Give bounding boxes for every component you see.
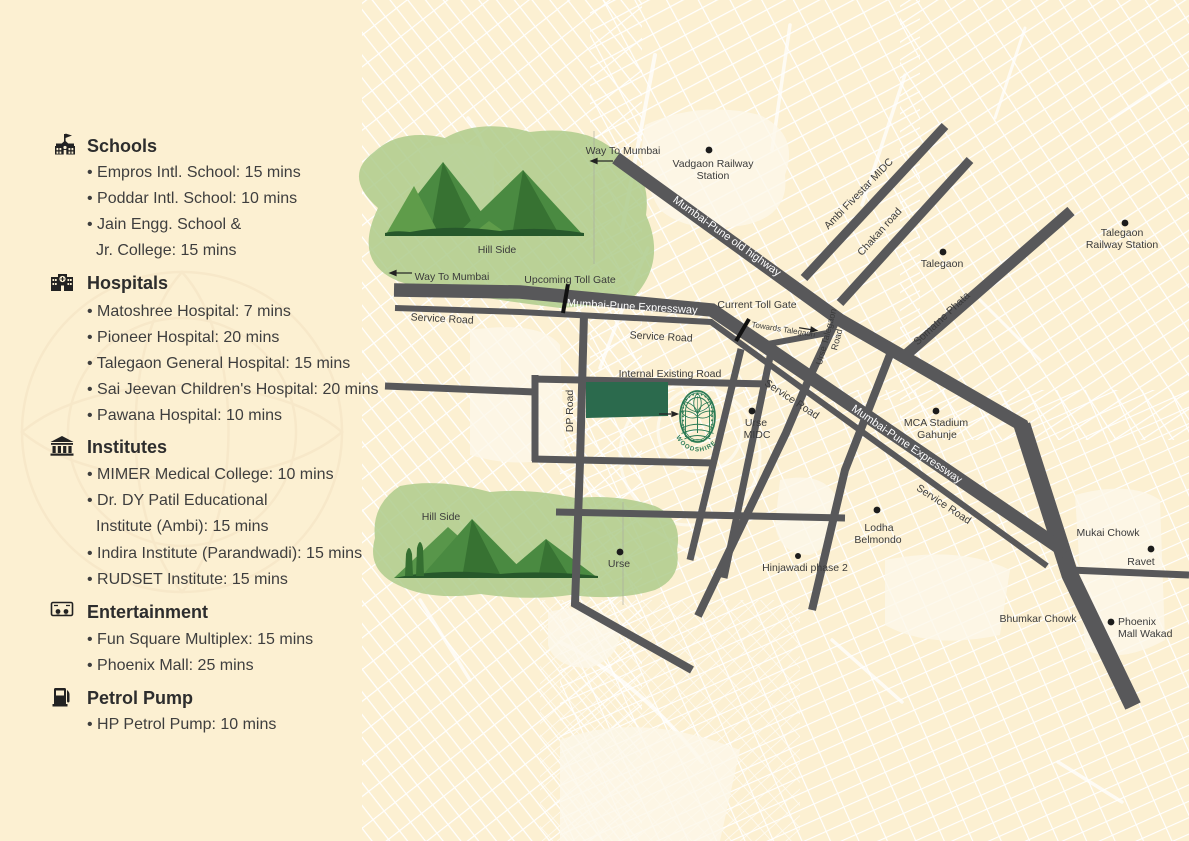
svg-text:Mukai Chowk: Mukai Chowk [1076, 527, 1140, 539]
svg-text:Urse: Urse [608, 558, 630, 570]
svg-text:Petrol Pump: Petrol Pump [87, 688, 193, 708]
svg-text:• Poddar Intl. School: 10 mins: • Poddar Intl. School: 10 mins [87, 190, 297, 207]
svg-text:Lodha: Lodha [864, 522, 893, 534]
svg-text:Way To Mumbai: Way To Mumbai [415, 271, 490, 283]
svg-text:Talegaon: Talegaon [921, 258, 964, 270]
svg-text:• Indira Institute (Parandwadi: • Indira Institute (Parandwadi): 15 mins [87, 545, 362, 562]
svg-text:Hinjawadi phase 2: Hinjawadi phase 2 [762, 562, 848, 574]
svg-text:Internal Existing Road: Internal Existing Road [619, 368, 722, 380]
svg-text:Phoenix: Phoenix [1118, 616, 1157, 628]
svg-text:Schools: Schools [87, 136, 157, 156]
svg-text:• MIMER Medical College: 10 mi: • MIMER Medical College: 10 mins [87, 466, 334, 483]
svg-text:Vadgaon Railway: Vadgaon Railway [673, 158, 755, 170]
svg-text:• Dr. DY Patil Educational: • Dr. DY Patil Educational [87, 492, 268, 509]
svg-text:• Phoenix Mall: 25 mins: • Phoenix Mall: 25 mins [87, 657, 254, 674]
svg-text:Hospitals: Hospitals [87, 273, 168, 293]
svg-text:DP Road: DP Road [564, 390, 576, 433]
svg-text:Ravet: Ravet [1127, 556, 1155, 568]
svg-text:• Pioneer Hospital: 20 mins: • Pioneer Hospital: 20 mins [87, 329, 279, 346]
svg-text:• Pawana Hospital: 10 mins: • Pawana Hospital: 10 mins [87, 407, 282, 424]
svg-text:Entertainment: Entertainment [87, 602, 208, 622]
svg-text:• Empros Intl. School: 15 mins: • Empros Intl. School: 15 mins [87, 164, 301, 181]
svg-text:Talegaon: Talegaon [1101, 227, 1144, 239]
svg-text:• Jain Engg. School &: • Jain Engg. School & [87, 216, 241, 233]
svg-text:Station: Station [697, 170, 730, 182]
svg-text:Way To Mumbai: Way To Mumbai [586, 145, 661, 157]
svg-text:Belmondo: Belmondo [854, 534, 901, 546]
svg-text:Jr. College: 15 mins: Jr. College: 15 mins [96, 242, 237, 259]
svg-text:Upcoming Toll Gate: Upcoming Toll Gate [524, 274, 616, 286]
svg-text:Current Toll Gate: Current Toll Gate [717, 299, 796, 311]
svg-text:Institute (Ambi): 15 mins: Institute (Ambi): 15 mins [96, 518, 269, 535]
svg-text:Bhumkar Chowk: Bhumkar Chowk [999, 613, 1077, 625]
svg-text:MCA Stadium: MCA Stadium [904, 417, 968, 429]
svg-text:Hill Side: Hill Side [478, 244, 517, 256]
svg-text:• Matoshree Hospital: 7 mins: • Matoshree Hospital: 7 mins [87, 303, 291, 320]
svg-text:MIDC: MIDC [744, 429, 771, 441]
svg-text:Urse: Urse [745, 417, 767, 429]
svg-text:Institutes: Institutes [87, 437, 167, 457]
svg-text:• Fun Square Multiplex: 15 min: • Fun Square Multiplex: 15 mins [87, 631, 313, 648]
svg-text:• HP Petrol Pump: 10 mins: • HP Petrol Pump: 10 mins [87, 716, 276, 733]
svg-text:Hill Side: Hill Side [422, 511, 461, 523]
svg-text:• Talegaon General Hospital: 1: • Talegaon General Hospital: 15 mins [87, 355, 350, 372]
svg-text:Railway Station: Railway Station [1086, 239, 1159, 251]
svg-text:• RUDSET Institute: 15 mins: • RUDSET Institute: 15 mins [87, 571, 288, 588]
svg-text:Mall Wakad: Mall Wakad [1118, 628, 1173, 640]
svg-text:Gahunje: Gahunje [917, 429, 957, 441]
svg-text:• Sai Jeevan Children's Hospit: • Sai Jeevan Children's Hospital: 20 min… [87, 381, 378, 398]
